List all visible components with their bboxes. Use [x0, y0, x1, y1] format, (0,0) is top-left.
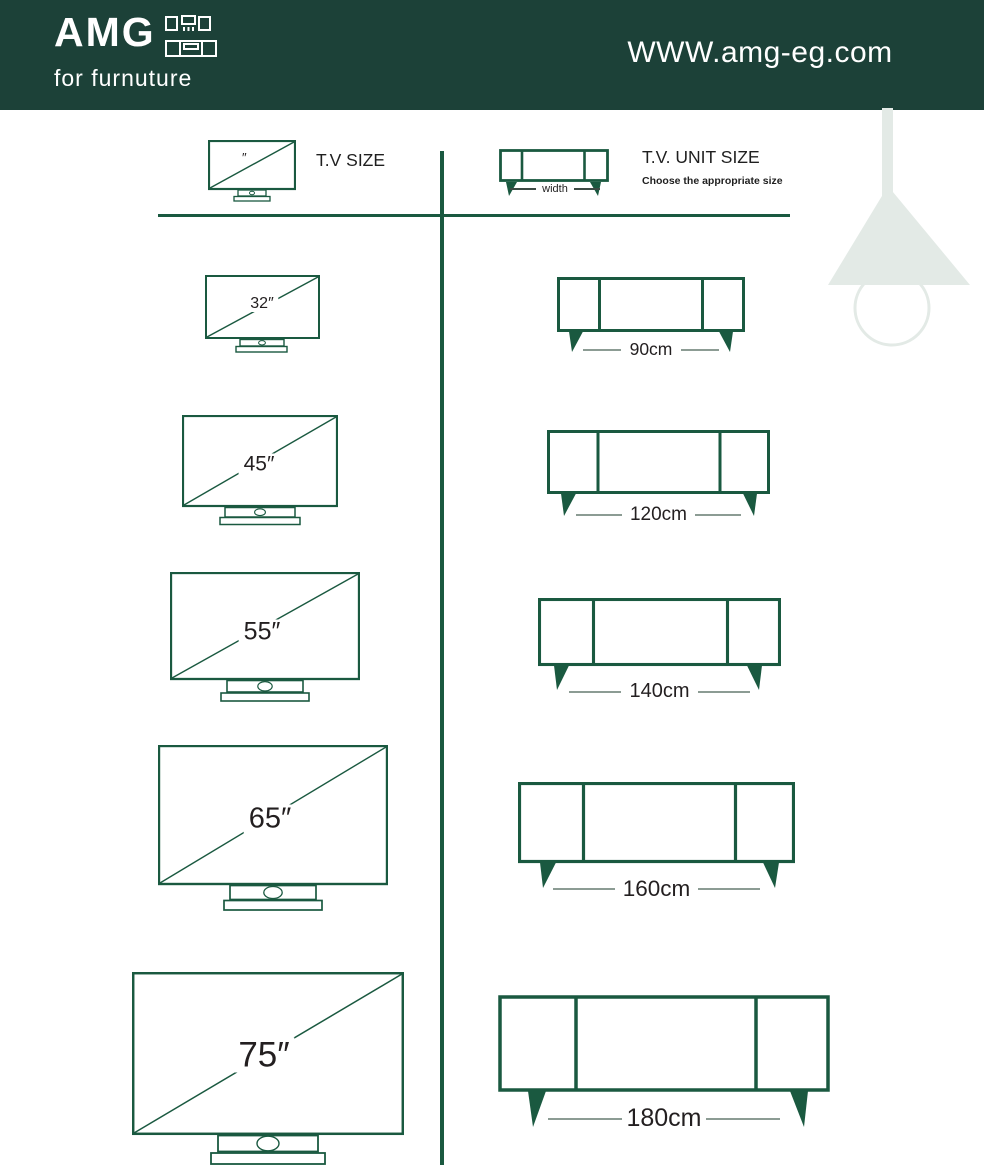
legend-unit-body	[501, 151, 608, 181]
tv-stand	[227, 681, 303, 693]
tv-32-figure: 32″	[205, 275, 320, 354]
measure-dash-left	[548, 1118, 622, 1120]
unit-140cm-figure	[538, 598, 781, 692]
unit-width-annotation: 90cm	[557, 339, 745, 360]
measure-dash-right	[698, 691, 750, 693]
unit-dividers	[598, 432, 720, 493]
unit-body	[559, 279, 744, 331]
legend-unit-dividers	[522, 151, 585, 181]
unit-width-annotation: 160cm	[518, 876, 795, 902]
tv-stand	[218, 1136, 318, 1152]
unit-160cm-figure	[518, 782, 795, 890]
tv-65-figure: 65″	[158, 745, 388, 912]
unit-width-annotation: 120cm	[547, 504, 770, 526]
website-url: WWW.amg-eg.com	[610, 36, 910, 70]
unit-body	[520, 784, 794, 862]
tv-size-label: 32″	[245, 296, 278, 312]
measure-dash-left	[553, 888, 615, 890]
column-divider-vertical	[440, 151, 444, 1165]
unit-width-label: 140cm	[629, 680, 689, 703]
tv-size-label: 65″	[244, 805, 297, 834]
legend-tv-title: T.V SIZE	[316, 150, 385, 171]
tv-55-figure: 55″	[170, 572, 360, 704]
legend-tv-figure: ″	[208, 140, 296, 206]
legend-inch-mark: ″	[242, 151, 247, 164]
brand-tagline: for furnuture	[54, 65, 217, 92]
unit-body	[549, 432, 769, 493]
pendant-lamp-decoration	[810, 108, 984, 358]
measure-dash-right	[695, 514, 741, 516]
unit-dividers	[576, 997, 756, 1090]
tv-size-label: 75″	[233, 1038, 294, 1073]
brand-logo: AMG for furnuture	[54, 10, 217, 92]
tv-size-label: 55″	[239, 620, 286, 645]
width-dash-left	[510, 188, 536, 190]
kitchen-cabinet-icon	[165, 15, 217, 64]
legend-width-annotation: width	[502, 183, 608, 195]
unit-body	[500, 997, 828, 1090]
unit-width-label: 90cm	[630, 339, 673, 360]
unit-dividers	[600, 279, 703, 331]
measure-dash-left	[583, 349, 621, 351]
unit-dividers	[594, 600, 728, 665]
unit-dividers	[584, 784, 736, 862]
tv-45-figure: 45″	[182, 415, 338, 527]
unit-width-annotation: 140cm	[538, 680, 781, 703]
header-bar: AMG for furnuture WWW.amg-eg.com	[0, 0, 984, 110]
lamp-shade	[828, 186, 970, 285]
legend-tv-diagonal	[210, 142, 294, 188]
width-label: width	[542, 183, 568, 195]
width-dash-right	[574, 188, 600, 190]
measure-dash-left	[569, 691, 621, 693]
measure-dash-right	[706, 1118, 780, 1120]
tv-size-label: 45″	[239, 454, 280, 475]
legend-unit-subtitle: Choose the appropriate size	[642, 175, 783, 187]
unit-width-annotation: 180cm	[498, 1104, 830, 1133]
header-divider-horizontal	[158, 214, 790, 217]
legend-unit-title: T.V. UNIT SIZE	[642, 147, 760, 168]
measure-dash-right	[698, 888, 760, 890]
unit-width-label: 120cm	[630, 504, 687, 526]
tv-stand	[230, 886, 316, 900]
measure-dash-right	[681, 349, 719, 351]
tv-75-figure: 75″	[132, 972, 404, 1168]
measure-dash-left	[576, 514, 622, 516]
unit-body	[540, 600, 780, 665]
unit-width-label: 160cm	[623, 876, 691, 902]
lamp-cord	[882, 108, 893, 200]
unit-width-label: 180cm	[626, 1104, 701, 1133]
tv-size-guide-page: AMG for furnuture WWW.amg-eg.com	[0, 0, 984, 1169]
brand-name: AMG	[54, 10, 156, 55]
